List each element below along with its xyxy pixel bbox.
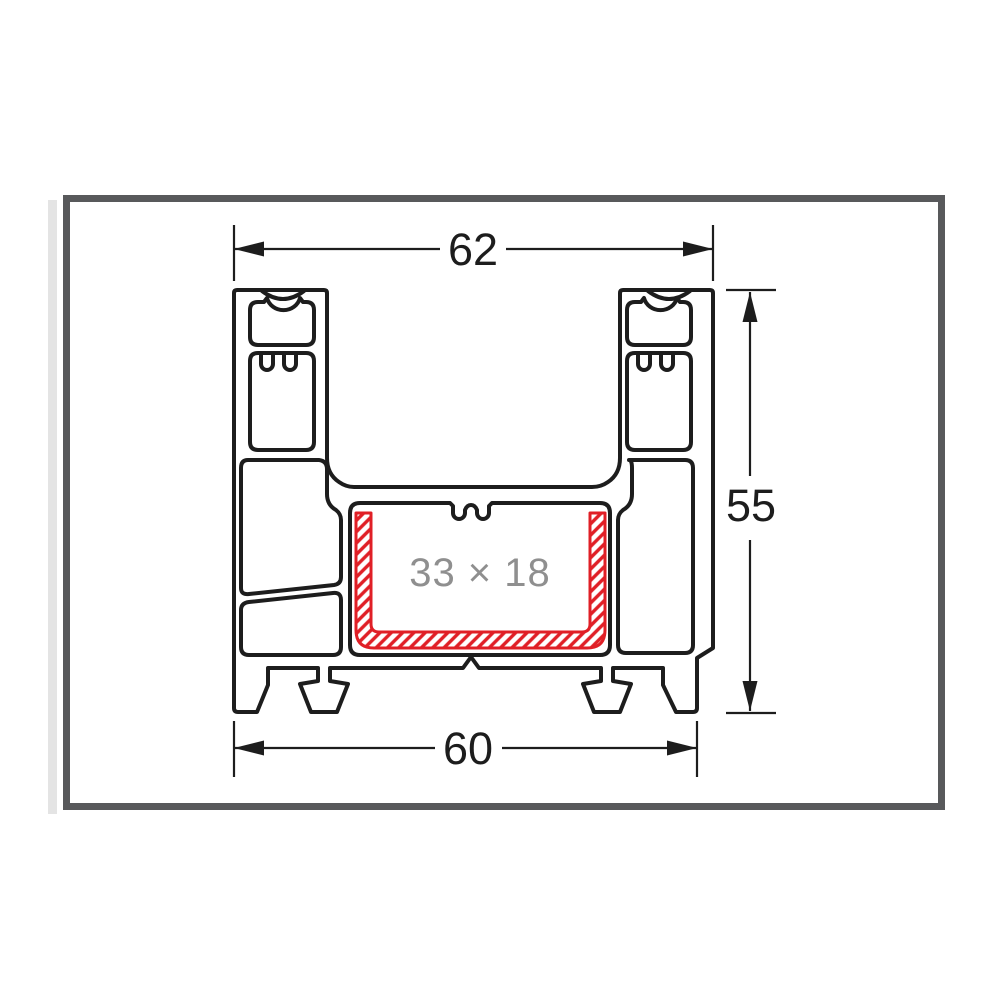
dimension-label-side: 55	[726, 480, 776, 531]
left-chamber-lower	[241, 460, 341, 594]
left-chamber-mid	[250, 353, 314, 450]
channel-size-label: 33 × 18	[409, 551, 551, 595]
page: 33 × 18 62 55	[0, 0, 1000, 1000]
dimension-label-bottom: 60	[443, 723, 493, 774]
left-chamber-bottom	[241, 593, 341, 655]
dimension-label-top: 62	[448, 224, 498, 275]
right-chamber-mid	[627, 353, 691, 450]
diagram-canvas: 33 × 18 62 55	[0, 0, 1000, 1000]
side-strip	[48, 200, 57, 814]
